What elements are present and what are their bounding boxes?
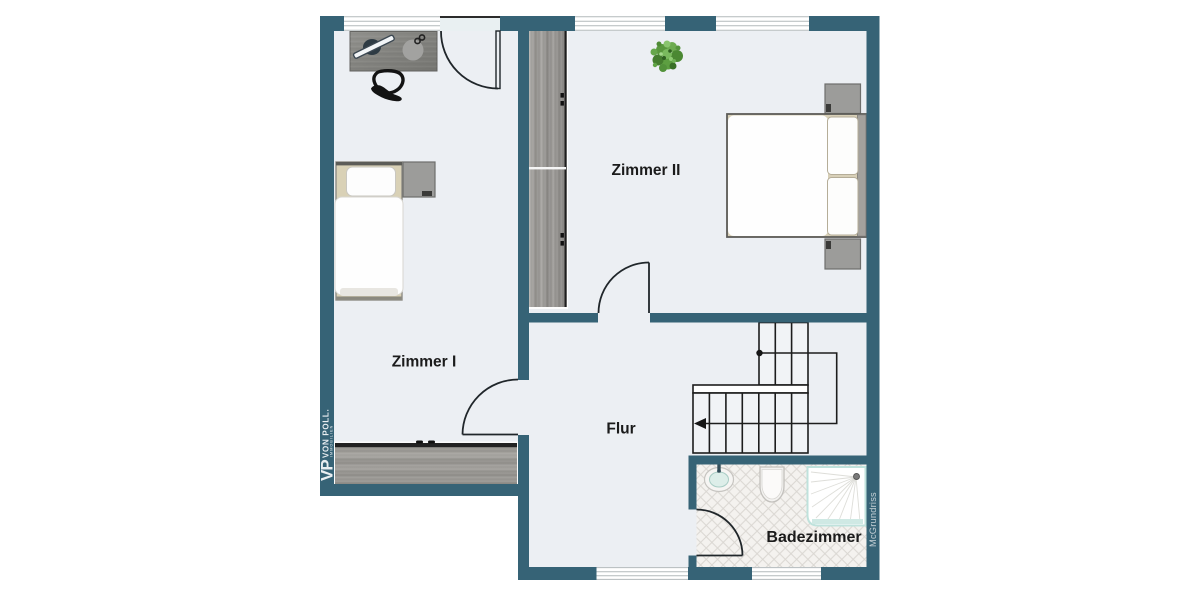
svg-text:VP: VP [318, 460, 337, 481]
svg-text:Zimmer II: Zimmer II [612, 162, 681, 179]
svg-text:Zimmer I: Zimmer I [392, 354, 457, 371]
svg-text:Flur: Flur [606, 421, 635, 438]
svg-text:Badezimmer: Badezimmer [766, 529, 861, 546]
svg-text:McGrundriss: McGrundriss [868, 492, 878, 547]
svg-text:IMMOBILIEN: IMMOBILIEN [330, 425, 334, 457]
